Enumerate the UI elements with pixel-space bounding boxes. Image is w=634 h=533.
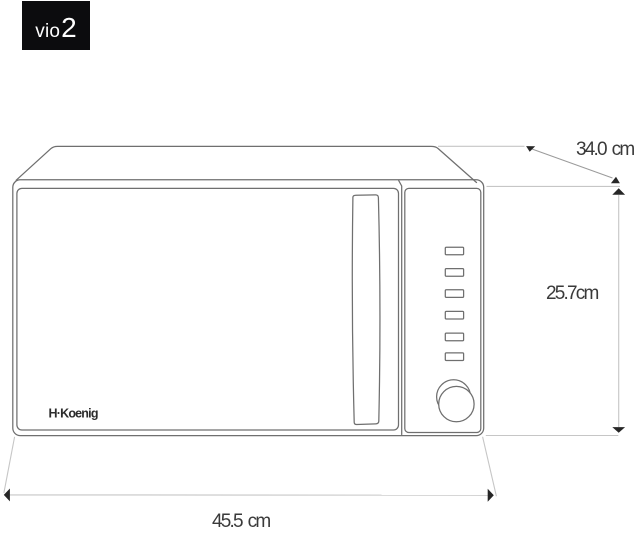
svg-text:H·Koenig: H·Koenig <box>49 407 98 421</box>
